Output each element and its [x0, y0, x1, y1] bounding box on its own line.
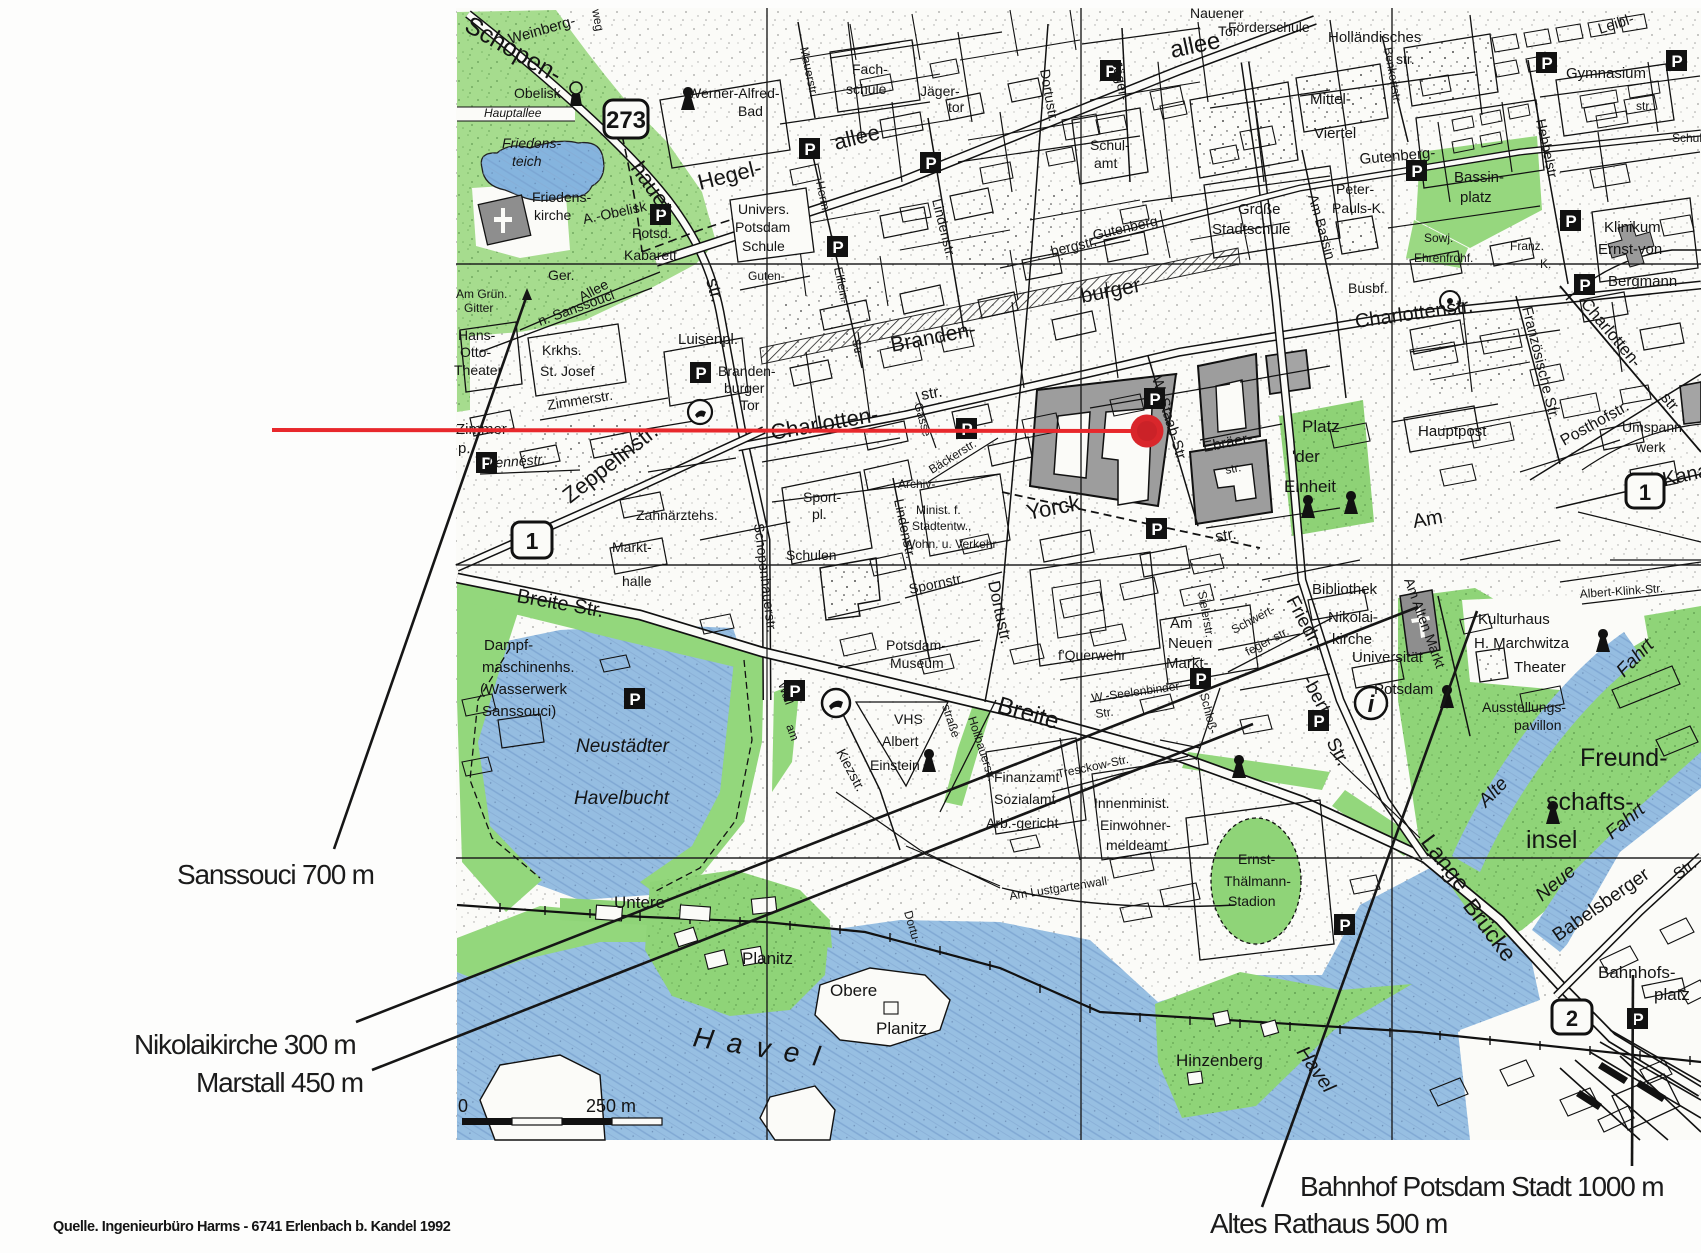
svg-text:P: P: [1579, 276, 1590, 295]
svg-text:platz: platz: [1460, 189, 1492, 206]
svg-text:Ger.: Ger.: [548, 267, 574, 283]
svg-text:f'Querwehr: f'Querwehr: [1058, 647, 1126, 663]
svg-text:Bergmann: Bergmann: [1608, 273, 1677, 290]
svg-text:Neustädter: Neustädter: [576, 736, 670, 757]
svg-text:Einheit: Einheit: [1284, 477, 1336, 496]
svg-text:Schulen: Schulen: [786, 547, 837, 563]
svg-text:p.: p.: [458, 440, 471, 457]
svg-text:Bassin-: Bassin-: [1454, 169, 1504, 186]
svg-text:P: P: [1151, 520, 1162, 539]
svg-text:Friedens-: Friedens-: [532, 189, 591, 205]
svg-text:Zahnärztehs.: Zahnärztehs.: [636, 507, 718, 523]
svg-text:Neuen: Neuen: [1168, 635, 1212, 652]
svg-text:Universität: Universität: [1352, 649, 1424, 666]
svg-text:Ernst-: Ernst-: [1238, 851, 1276, 867]
svg-text:Nikolai-: Nikolai-: [1328, 609, 1378, 626]
svg-text:P: P: [1565, 212, 1576, 231]
svg-text:Am Grün.: Am Grün.: [456, 287, 507, 301]
svg-text:kirche: kirche: [534, 207, 572, 223]
svg-text:Krkhs.: Krkhs.: [542, 342, 582, 358]
svg-text:Finanzamt: Finanzamt: [994, 769, 1059, 785]
svg-text:Klinikum: Klinikum: [1604, 219, 1661, 236]
svg-text:Dampf-: Dampf-: [484, 637, 533, 654]
svg-text:Potsd.: Potsd.: [632, 225, 672, 241]
svg-text:Platz: Platz: [1302, 417, 1340, 436]
svg-text:Hauptallee: Hauptallee: [484, 106, 542, 120]
svg-text:halle: halle: [622, 573, 652, 589]
svg-text:250 m: 250 m: [586, 1096, 636, 1116]
svg-text:Ehrenfrdhf.: Ehrenfrdhf.: [1414, 251, 1473, 265]
svg-text:Bahnhof Potsdam Stadt 1000 m: Bahnhof Potsdam Stadt 1000 m: [1300, 1171, 1663, 1202]
svg-text:Univers.: Univers.: [738, 201, 789, 217]
svg-text:Friedens-: Friedens-: [502, 135, 561, 151]
svg-text:P: P: [1411, 162, 1422, 181]
svg-text:Ernst-von: Ernst-von: [1598, 241, 1662, 258]
svg-text:str.: str.: [1214, 526, 1238, 546]
svg-text:Gitter: Gitter: [464, 301, 493, 315]
svg-text:Hauptpost: Hauptpost: [1418, 423, 1487, 440]
svg-text:Einstein: Einstein: [870, 757, 920, 773]
svg-text:Schul-: Schul-: [1090, 137, 1130, 153]
svg-text:Franz.: Franz.: [1510, 239, 1544, 253]
svg-text:Am: Am: [1170, 615, 1193, 632]
svg-text:VHS: VHS: [894, 711, 923, 727]
svg-text:P: P: [1541, 54, 1552, 73]
svg-text:2: 2: [1566, 1006, 1578, 1031]
svg-text:pavillon: pavillon: [1514, 717, 1561, 733]
svg-text:burger: burger: [724, 380, 765, 396]
svg-text:Quelle. Ingenieurbüro Harms -: Quelle. Ingenieurbüro Harms - 6741 Erlen…: [53, 1219, 451, 1235]
svg-text:maschinenhs.: maschinenhs.: [482, 659, 575, 676]
svg-text:Str.: Str.: [1094, 705, 1114, 721]
svg-text:Werner-Alfred-: Werner-Alfred-: [688, 85, 780, 101]
svg-text:Archiv-: Archiv-: [898, 477, 935, 491]
svg-text:teich: teich: [512, 153, 542, 169]
svg-text:tor: tor: [948, 99, 965, 115]
svg-text:P: P: [629, 690, 640, 709]
svg-text:Luisenpl.: Luisenpl.: [678, 331, 738, 348]
svg-text:Tor: Tor: [740, 397, 760, 413]
svg-text:Holländisches: Holländisches: [1328, 29, 1421, 46]
svg-text:Kulturhaus: Kulturhaus: [1478, 611, 1550, 628]
svg-text:platz: platz: [1654, 985, 1690, 1004]
svg-text:str.: str.: [1224, 460, 1242, 477]
svg-text:P: P: [832, 238, 843, 257]
svg-text:Jäger-: Jäger-: [920, 83, 960, 99]
svg-text:'der: 'der: [1292, 447, 1320, 466]
svg-text:P: P: [1195, 670, 1206, 689]
svg-text:Mittel-: Mittel-: [1310, 91, 1351, 108]
svg-text:Museum: Museum: [890, 655, 944, 671]
svg-text:amt: amt: [1094, 155, 1117, 171]
svg-text:Minist. f.: Minist. f.: [916, 503, 961, 517]
svg-text:Kabarett: Kabarett: [624, 247, 677, 263]
svg-text:Stadtentw.,: Stadtentw.,: [912, 519, 971, 533]
svg-text:K.: K.: [1540, 257, 1551, 271]
svg-text:Planitz: Planitz: [742, 949, 793, 968]
svg-text:Hinzenberg: Hinzenberg: [1176, 1051, 1263, 1070]
svg-text:Schul-: Schul-: [1672, 131, 1701, 145]
svg-text:P: P: [804, 140, 815, 159]
svg-text:Nauener: Nauener: [1190, 5, 1244, 21]
svg-text:Sowj.: Sowj.: [1424, 231, 1453, 245]
svg-text:P: P: [1339, 916, 1350, 935]
svg-text:Stadtschule: Stadtschule: [1212, 221, 1290, 238]
svg-text:Schule: Schule: [742, 238, 785, 254]
svg-text:insel: insel: [1526, 826, 1577, 854]
svg-text:Wohn. u. Verkehr: Wohn. u. Verkehr: [904, 537, 997, 551]
svg-text:Umspann: Umspann: [1622, 419, 1682, 435]
svg-text:0: 0: [458, 1096, 468, 1116]
svg-text:Obelisk: Obelisk: [514, 85, 562, 101]
svg-text:(Wasserwerk: (Wasserwerk: [480, 681, 567, 698]
svg-text:P: P: [1671, 52, 1682, 71]
svg-text:P: P: [695, 364, 706, 383]
svg-text:pl.: pl.: [812, 506, 827, 522]
svg-text:Peter-: Peter-: [1336, 181, 1374, 197]
svg-text:Planitz: Planitz: [876, 1019, 927, 1038]
svg-text:Markt-: Markt-: [612, 539, 652, 555]
svg-text:Hans-: Hans-: [458, 327, 496, 343]
svg-text:werk: werk: [1635, 439, 1667, 455]
svg-text:Havelbucht: Havelbucht: [574, 788, 670, 809]
svg-text:Sanssouci): Sanssouci): [482, 703, 556, 720]
svg-text:Thälmann-: Thälmann-: [1224, 873, 1291, 889]
svg-text:str.: str.: [1636, 99, 1652, 113]
svg-text:Theater: Theater: [454, 362, 503, 378]
svg-text:Busbf.: Busbf.: [1348, 280, 1388, 296]
svg-text:Fach-: Fach-: [852, 61, 888, 77]
svg-text:Innenminist.: Innenminist.: [1094, 795, 1169, 811]
svg-text:Theater: Theater: [1514, 659, 1566, 676]
svg-text:Bahnhofs-: Bahnhofs-: [1598, 963, 1676, 982]
svg-text:Sport-: Sport-: [803, 489, 841, 505]
svg-text:Albert: Albert: [882, 733, 919, 749]
svg-text:Arb.-gericht: Arb.-gericht: [986, 815, 1058, 831]
svg-text:1: 1: [1639, 480, 1651, 505]
svg-text:Freund-: Freund-: [1580, 744, 1668, 772]
svg-text:P: P: [925, 154, 936, 173]
svg-text:Potsdam: Potsdam: [735, 219, 790, 235]
svg-text:schule: schule: [846, 81, 887, 97]
svg-text:Tor: Tor: [1218, 23, 1238, 39]
svg-text:St. Josef: St. Josef: [540, 363, 595, 379]
svg-text:Guten-: Guten-: [748, 269, 785, 283]
svg-text:Potsdam-: Potsdam-: [886, 637, 946, 653]
svg-text:Förderschule: Förderschule: [1228, 19, 1310, 35]
svg-text:Große: Große: [1238, 201, 1281, 218]
svg-text:Markt-: Markt-: [1166, 655, 1209, 672]
svg-text:Obere: Obere: [830, 981, 877, 1000]
svg-text:meldeamt: meldeamt: [1106, 837, 1168, 853]
svg-text:Stadion: Stadion: [1228, 893, 1275, 909]
svg-text:Untere: Untere: [614, 893, 665, 912]
svg-text:Einwohner-: Einwohner-: [1100, 817, 1171, 833]
svg-text:Gymnasium: Gymnasium: [1566, 65, 1646, 82]
svg-text:Potsdam: Potsdam: [1374, 681, 1433, 698]
svg-text:273: 273: [606, 107, 646, 134]
svg-text:Bad: Bad: [738, 103, 763, 119]
svg-text:1: 1: [526, 528, 539, 554]
svg-text:Pauls-K.: Pauls-K.: [1332, 200, 1385, 216]
svg-text:H. Marchwitza: H. Marchwitza: [1474, 635, 1570, 652]
svg-text:Altes Rathaus 500 m: Altes Rathaus 500 m: [1210, 1208, 1447, 1239]
svg-text:Otto-: Otto-: [460, 344, 491, 360]
svg-text:Bibliothek: Bibliothek: [1312, 581, 1378, 598]
svg-text:Viertel: Viertel: [1314, 125, 1356, 142]
svg-text:Ausstellungs-: Ausstellungs-: [1482, 699, 1566, 715]
svg-text:Branden-: Branden-: [718, 363, 776, 379]
svg-text:Nikolaikirche 300 m: Nikolaikirche 300 m: [134, 1029, 356, 1060]
svg-text:Sanssouci 700 m: Sanssouci 700 m: [177, 859, 374, 890]
svg-text:Marstall 450 m: Marstall 450 m: [196, 1067, 363, 1098]
